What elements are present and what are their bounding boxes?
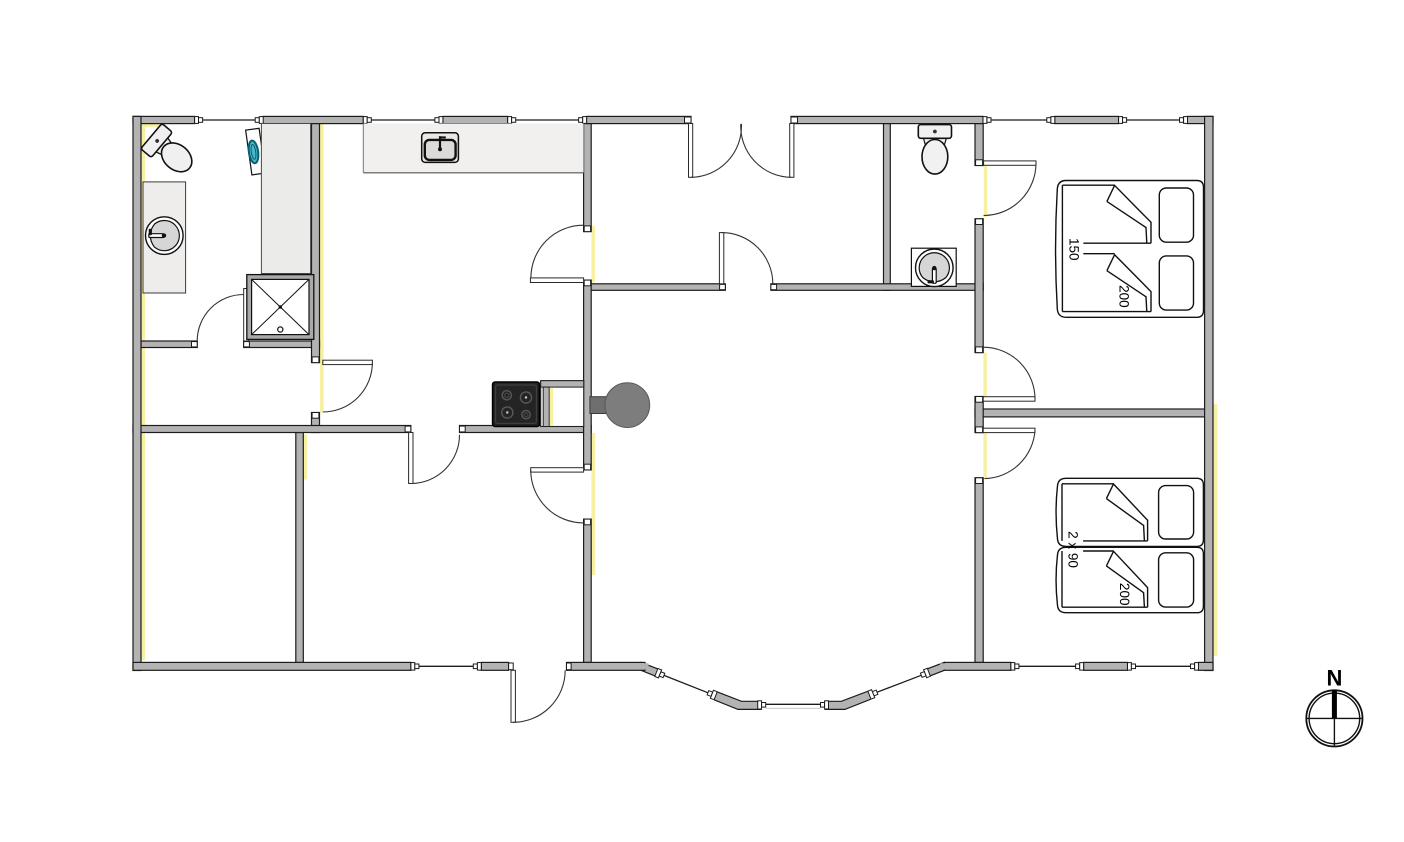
svg-text:N: N <box>1326 666 1342 691</box>
svg-text:200: 200 <box>1117 583 1132 606</box>
svg-text:2 x 90: 2 x 90 <box>1066 531 1081 568</box>
svg-text:150: 150 <box>1066 238 1081 261</box>
svg-text:200: 200 <box>1117 285 1132 308</box>
